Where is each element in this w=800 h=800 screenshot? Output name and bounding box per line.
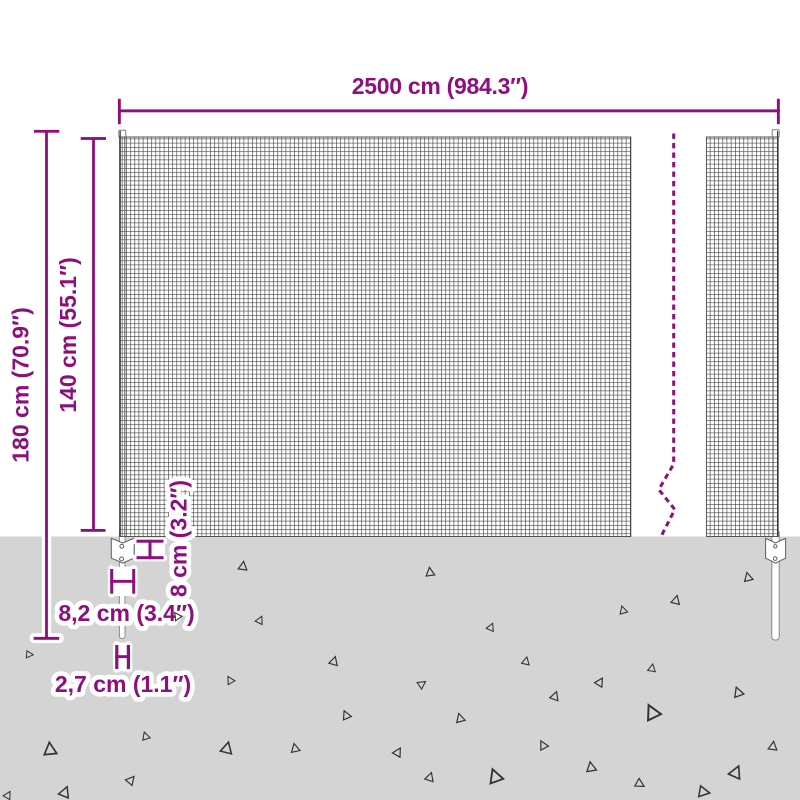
svg-text:140 cm (55.1″): 140 cm (55.1″) — [55, 257, 81, 413]
svg-text:2,7 cm (1.1″): 2,7 cm (1.1″) — [55, 671, 191, 697]
svg-text:8 cm (3.2″): 8 cm (3.2″) — [166, 480, 192, 597]
svg-text:2500 cm (984.3″): 2500 cm (984.3″) — [352, 73, 529, 99]
svg-text:180 cm (70.9″): 180 cm (70.9″) — [8, 307, 34, 463]
